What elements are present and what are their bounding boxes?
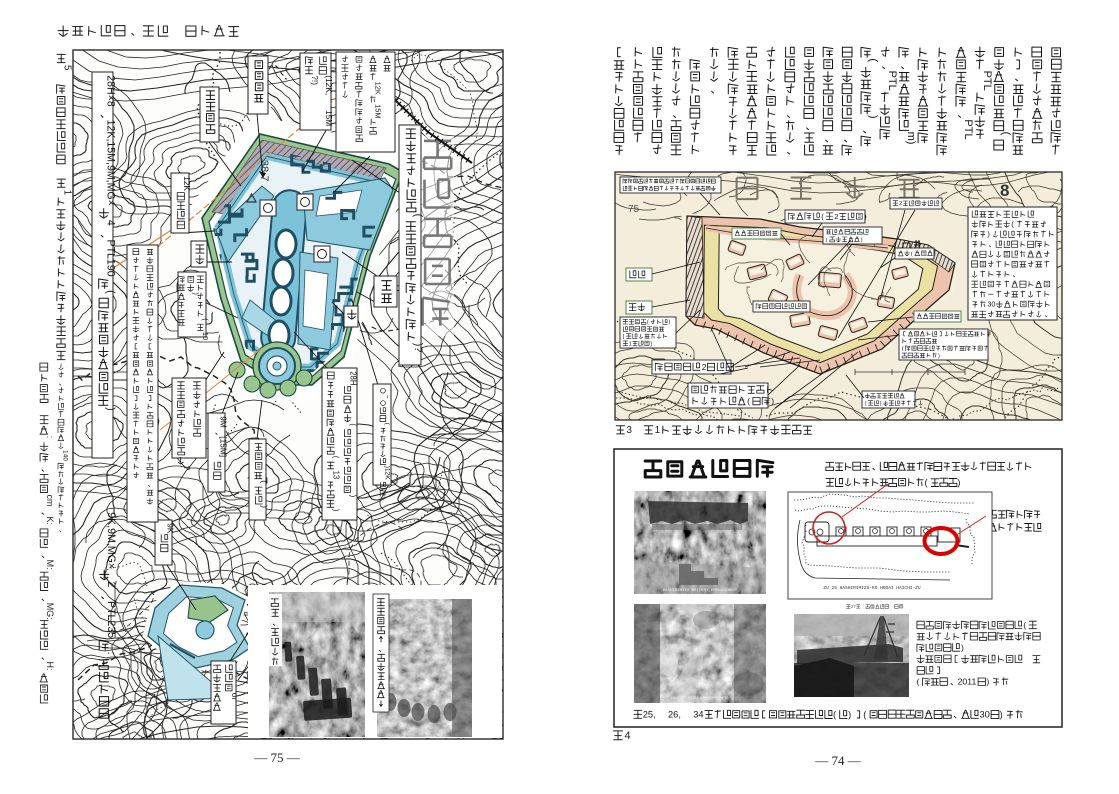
svg-text:(: ( <box>348 423 357 426</box>
svg-text:): ) <box>771 396 774 406</box>
svg-text:30: 30 <box>987 300 995 309</box>
svg-text:28H: 28H <box>348 371 357 385</box>
svg-text:— 74 —: — 74 — <box>814 753 862 768</box>
svg-text:~: ~ <box>383 395 390 399</box>
svg-text:PTL: PTL <box>886 71 898 91</box>
svg-text:or: or <box>230 693 240 701</box>
svg-text:): ) <box>331 509 340 512</box>
svg-text:): ) <box>260 505 270 508</box>
svg-text:(: ( <box>1023 620 1026 630</box>
svg-text:[15M]: [15M] <box>219 436 229 457</box>
svg-text:(: ( <box>917 677 920 687</box>
svg-text:5: 5 <box>62 65 73 70</box>
svg-text:(: ( <box>412 214 424 218</box>
svg-text:12K: 12K <box>182 176 192 191</box>
svg-text:13: 13 <box>331 471 340 480</box>
svg-text:25,: 25, <box>643 710 656 720</box>
svg-text:2: 2 <box>899 201 902 207</box>
svg-text:28H×8: 28H×8 <box>104 75 116 107</box>
svg-text:(: ( <box>826 237 828 243</box>
svg-text:K:: K: <box>45 517 55 526</box>
svg-text:140: 140 <box>61 450 68 461</box>
svg-text:12K,15M,9M,MG×: 12K,15M,9M,MG× <box>104 120 116 206</box>
svg-text:27: 27 <box>851 604 856 609</box>
svg-text:34: 34 <box>693 710 703 720</box>
svg-text:26,: 26, <box>668 710 681 720</box>
svg-text:— 75 —: — 75 — <box>253 750 301 765</box>
svg-text:2: 2 <box>702 362 707 372</box>
svg-text:(: ( <box>331 456 340 459</box>
svg-text:MG:: MG: <box>45 603 55 620</box>
svg-text:75: 75 <box>628 204 640 215</box>
svg-text:(: ( <box>1000 132 1012 136</box>
svg-text:)?: )? <box>412 343 424 353</box>
svg-text:HASHIRIMIZU BATTERY EMPLACEM: HASHIRIMIZU BATTERY EMPLACEMENT <box>663 589 738 593</box>
svg-text:): ) <box>348 495 357 498</box>
svg-text:(: ( <box>747 396 750 406</box>
svg-text:(: ( <box>902 346 904 352</box>
svg-text::: : <box>105 652 117 655</box>
svg-text:): ) <box>987 230 989 239</box>
svg-text:PTL: PTL <box>962 119 974 139</box>
svg-text:30: 30 <box>980 710 990 720</box>
svg-text:): ) <box>867 115 879 119</box>
svg-text:): ) <box>669 320 671 326</box>
svg-text:PTL235: PTL235 <box>105 601 117 638</box>
svg-text:): ) <box>957 478 960 488</box>
svg-text:PTL190: PTL190 <box>104 240 116 277</box>
svg-text:9K,9M,MG×: 9K,9M,MG× <box>105 512 117 569</box>
svg-text:15M: 15M <box>324 110 334 126</box>
svg-text:): ) <box>880 401 882 407</box>
svg-text:8: 8 <box>1000 181 1009 200</box>
svg-text:(12K,: (12K, <box>324 75 334 95</box>
svg-text:4: 4 <box>104 220 116 226</box>
svg-text:(: ( <box>104 290 116 294</box>
svg-text:cm: cm <box>45 495 55 507</box>
svg-text:): ) <box>934 251 936 257</box>
svg-text:(: ( <box>647 320 649 326</box>
svg-text:): ) <box>191 292 200 294</box>
svg-text:2: 2 <box>105 582 117 588</box>
svg-text:)12K: )12K <box>383 466 390 481</box>
svg-text:(: ( <box>865 401 867 407</box>
svg-text:2011: 2011 <box>958 677 977 687</box>
svg-text:HASHIRIMIZU BATTERY SITE: HASHIRIMIZU BATTERY SITE <box>671 697 729 701</box>
svg-text:9K: 9K <box>166 523 176 534</box>
svg-text:): ) <box>1000 710 1003 720</box>
svg-text:15M: 15M <box>374 104 383 118</box>
svg-text:?: ? <box>182 466 191 471</box>
svg-text:1: 1 <box>62 190 73 195</box>
svg-text:m): m) <box>905 132 917 145</box>
svg-text:PTL: PTL <box>981 71 993 91</box>
svg-text:38.7: 38.7 <box>258 160 270 181</box>
svg-text:?!): ?!) <box>310 75 320 85</box>
svg-text:): ) <box>861 237 863 243</box>
svg-text:): ) <box>986 677 989 687</box>
svg-text:): ) <box>104 407 116 411</box>
svg-text:(: ( <box>867 58 879 62</box>
svg-text:2: 2 <box>834 212 838 221</box>
svg-text:H:: H: <box>45 662 55 671</box>
svg-text:12K: 12K <box>374 82 383 95</box>
svg-text:9M: 9M <box>219 416 229 428</box>
svg-text::: : <box>45 436 55 439</box>
svg-text:): ) <box>848 710 851 720</box>
svg-text:M:: M: <box>45 560 55 570</box>
svg-text:): ) <box>961 643 964 653</box>
svg-text:1: 1 <box>629 341 632 347</box>
svg-text:(: ( <box>911 251 913 257</box>
svg-text:3: 3 <box>626 425 632 436</box>
svg-text:ZU 25 HASHIRIMIZU-KO HODAI HA: ZU 25 HASHIRIMIZU-KO HODAI HAICHI-ZU <box>823 585 921 591</box>
svg-text:1: 1 <box>655 425 661 436</box>
svg-text:10: 10 <box>201 332 210 340</box>
svg-text:4: 4 <box>625 730 631 742</box>
svg-text:(: ( <box>260 480 270 483</box>
svg-text:): ) <box>938 353 940 359</box>
